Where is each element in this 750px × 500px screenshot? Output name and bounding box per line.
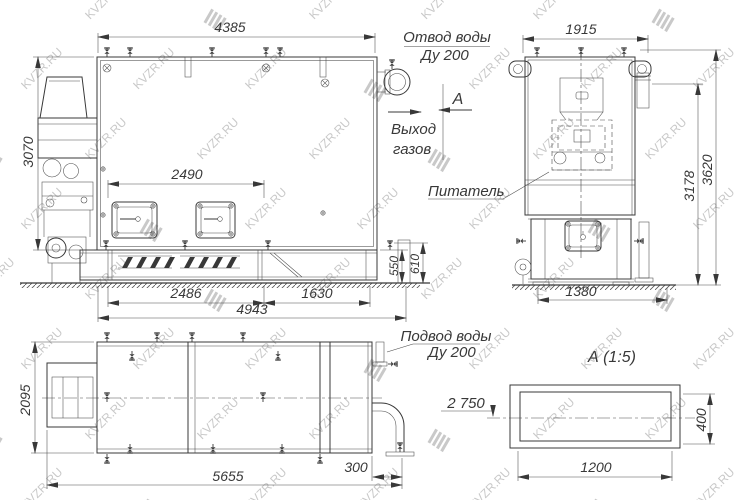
front-labels: Питатель [428,172,549,200]
gas-exit-label-2: газов [393,141,431,158]
front-lugs [509,61,651,77]
svg-text:KVZR.RU: KVZR.RU [242,325,289,372]
front-view: 1915 3178 3620 1380 Питатель [428,21,721,304]
side-dim-2486: 2486 [169,285,201,301]
plan-dim-300: 300 [344,459,368,475]
plan-elbow [372,403,414,456]
side-ground [20,283,430,288]
svg-text:KVZR.RU: KVZR.RU [0,0,17,22]
svg-text:KVZR.RU: KVZR.RU [530,395,577,442]
svg-text:KVZR.RU: KVZR.RU [82,395,129,442]
svg-text:KVZR.RU: KVZR.RU [690,465,737,500]
svg-text:KVZR.RU: KVZR.RU [242,185,289,232]
svg-text:KVZR.RU: KVZR.RU [690,185,737,232]
svg-text:KVZR.RU: KVZR.RU [530,0,577,22]
detail-title: А (1:5) [587,349,636,366]
view-arrow-letter: А [452,91,464,108]
svg-text:KVZR.RU: KVZR.RU [82,0,129,22]
svg-text:KVZR.RU: KVZR.RU [466,45,513,92]
svg-text:KVZR.RU: KVZR.RU [642,395,689,442]
side-feeder [38,77,97,283]
water-outlet-size: Ду 200 [419,47,469,64]
plan-labels: Подвод воды Ду 200 2 750 [387,328,493,416]
side-view: 4385 3070 2490 2486 1630 4943 550 [20,19,491,322]
side-dim-550: 550 [387,256,401,276]
svg-text:KVZR.RU: KVZR.RU [242,465,289,500]
side-grates [118,256,240,268]
svg-text:KVZR.RU: KVZR.RU [642,115,689,162]
front-hatch [565,221,601,251]
side-hatch-2 [196,202,235,238]
side-dim-4943: 4943 [236,301,267,317]
svg-text:KVZR.RU: KVZR.RU [466,465,513,500]
detail-view: А (1:5) 1200 400 [487,349,715,481]
front-dim-3620: 3620 [699,154,715,185]
side-dim-hatch-pitch: 2490 [170,166,202,182]
svg-text:KVZR.RU: KVZR.RU [82,115,129,162]
side-dim-top-width: 4385 [214,19,245,35]
svg-text:KVZR.RU: KVZR.RU [578,45,625,92]
feeder-label: Питатель [428,183,505,200]
side-dimensions: 4385 3070 2490 2486 1630 4943 550 [20,19,428,322]
plan-feeder [47,363,97,427]
water-inlet-label: Подвод воды [401,328,492,345]
side-dim-1630: 1630 [301,285,332,301]
detail-dim-height: 400 [693,408,709,432]
water-inlet-size: Ду 200 [426,344,476,361]
level-mark: 2 750 [446,395,485,412]
front-dim-3178: 3178 [681,170,697,201]
water-outlet-label: Отвод воды [403,29,491,46]
side-dim-610: 610 [408,254,422,274]
svg-text:KVZR.RU: KVZR.RU [18,325,65,372]
svg-text:KVZR.RU: KVZR.RU [194,115,241,162]
plan-dim-height: 2095 [17,384,33,416]
svg-text:KVZR.RU: KVZR.RU [130,325,177,372]
side-dim-height: 3070 [20,136,36,167]
front-dim-top-width: 1915 [565,21,596,37]
svg-text:KVZR.RU: KVZR.RU [354,185,401,232]
svg-text:KVZR.RU: KVZR.RU [18,465,65,500]
plan-dimensions: 2095 5655 300 [17,342,402,489]
detail-dim-width: 1200 [580,459,611,475]
front-dim-bottom-width: 1380 [565,283,596,299]
side-hatch-1 [112,202,157,238]
svg-text:KVZR.RU: KVZR.RU [690,45,737,92]
svg-text:KVZR.RU: KVZR.RU [130,45,177,92]
front-base [515,219,643,285]
svg-text:KVZR.RU: KVZR.RU [0,255,17,302]
svg-text:KVZR.RU: KVZR.RU [306,0,353,22]
svg-text:KVZR.RU: KVZR.RU [18,45,65,92]
drawing-sheet: KVZR.RUKVZR.RUKVZR.RUKVZR.RUKVZR.RUKVZR.… [0,0,750,500]
plan-dim-overall: 5655 [212,468,243,484]
svg-text:KVZR.RU: KVZR.RU [690,325,737,372]
svg-text:KVZR.RU: KVZR.RU [530,115,577,162]
side-labels: Отвод воды Ду 200 А Выход газов [388,29,491,160]
svg-text:KVZR.RU: KVZR.RU [194,395,241,442]
gas-exit-label-1: Выход [391,121,436,138]
svg-text:KVZR.RU: KVZR.RU [306,115,353,162]
svg-text:KVZR.RU: KVZR.RU [418,255,465,302]
svg-text:KVZR.RU: KVZR.RU [418,0,465,22]
svg-text:KVZR.RU: KVZR.RU [82,255,129,302]
front-dimensions: 1915 3178 3620 1380 [523,21,721,304]
